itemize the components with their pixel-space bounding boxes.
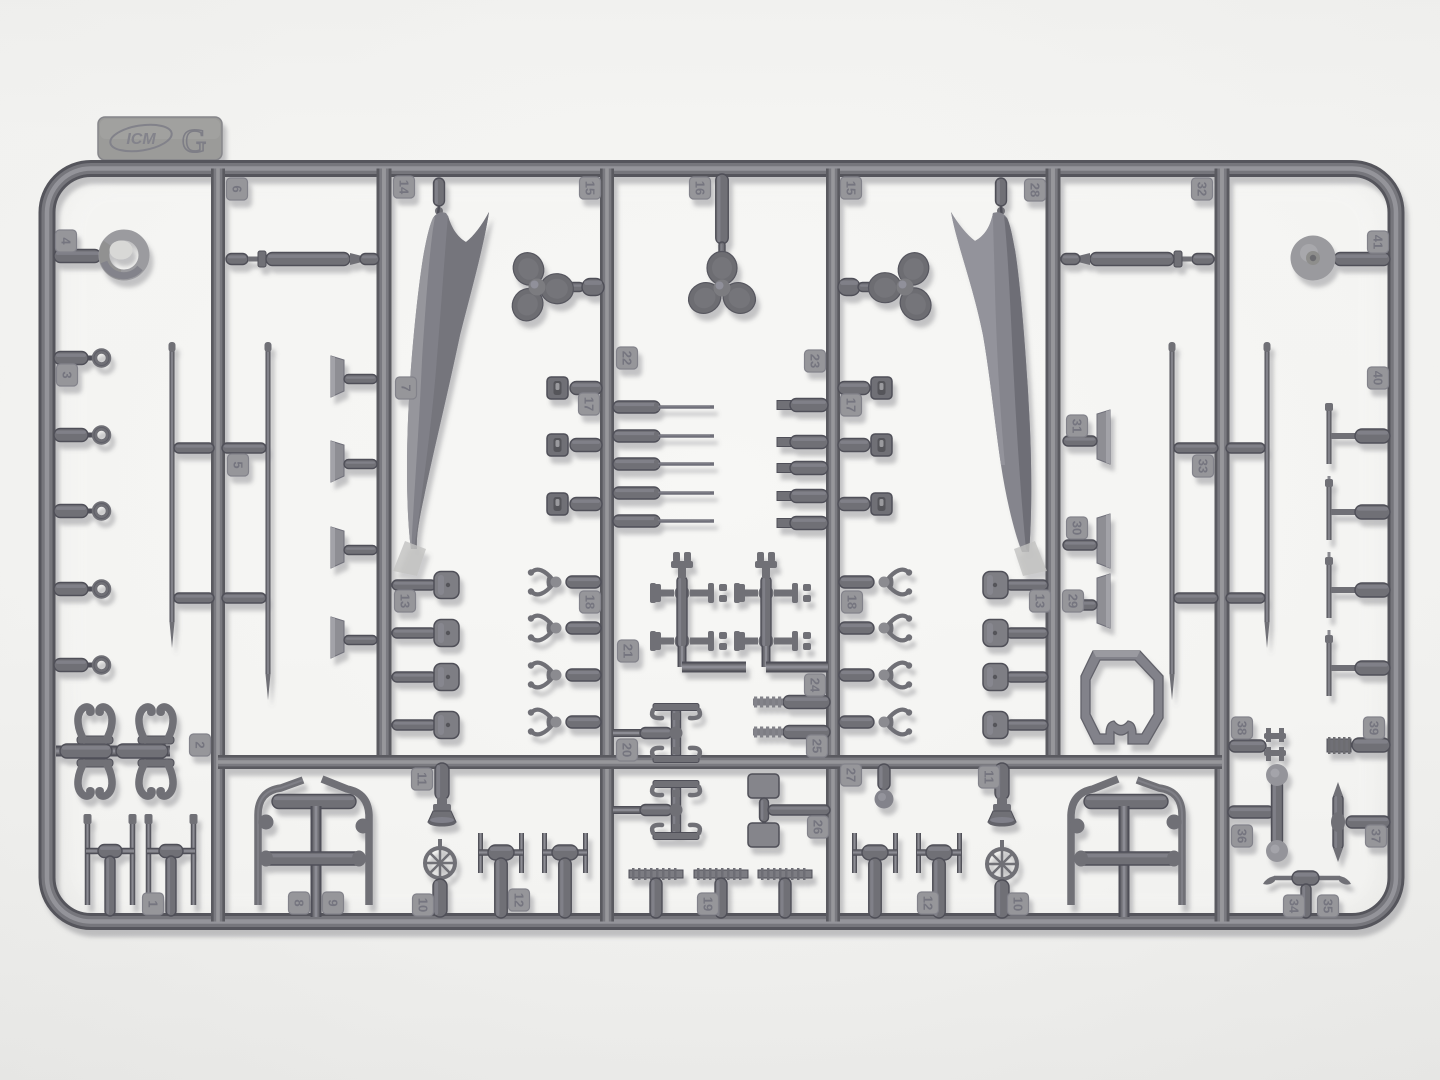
svg-text:ICM: ICM (126, 131, 156, 148)
svg-text:32: 32 (1195, 182, 1210, 196)
svg-text:19: 19 (701, 897, 716, 911)
svg-text:40: 40 (1371, 371, 1386, 385)
svg-text:23: 23 (808, 354, 823, 368)
svg-text:20: 20 (620, 743, 635, 757)
svg-text:6: 6 (230, 185, 245, 192)
svg-text:37: 37 (1369, 829, 1384, 843)
svg-text:13: 13 (398, 594, 413, 608)
svg-text:22: 22 (620, 351, 635, 365)
svg-text:11: 11 (415, 772, 430, 786)
svg-text:18: 18 (583, 595, 598, 609)
svg-text:25: 25 (810, 739, 825, 753)
svg-text:41: 41 (1371, 235, 1386, 249)
svg-text:21: 21 (621, 644, 636, 658)
svg-text:1: 1 (146, 900, 161, 907)
svg-text:15: 15 (583, 181, 598, 195)
svg-text:17: 17 (844, 398, 859, 412)
svg-text:39: 39 (1367, 721, 1382, 735)
svg-text:13: 13 (1033, 594, 1048, 608)
svg-text:3: 3 (60, 371, 75, 378)
svg-text:12: 12 (512, 893, 527, 907)
svg-text:30: 30 (1070, 521, 1085, 535)
svg-text:31: 31 (1070, 419, 1085, 433)
svg-text:10: 10 (1011, 897, 1026, 911)
svg-text:4: 4 (59, 237, 74, 245)
svg-text:8: 8 (292, 899, 307, 906)
svg-text:14: 14 (397, 180, 412, 195)
svg-text:34: 34 (1287, 899, 1302, 914)
svg-text:33: 33 (1196, 459, 1211, 473)
svg-text:5: 5 (231, 461, 246, 468)
svg-text:12: 12 (921, 896, 936, 910)
svg-text:35: 35 (1321, 899, 1336, 913)
svg-text:29: 29 (1066, 594, 1081, 608)
svg-text:2: 2 (193, 741, 208, 748)
svg-text:24: 24 (808, 678, 823, 693)
svg-text:38: 38 (1235, 721, 1250, 735)
svg-text:26: 26 (811, 820, 826, 834)
svg-text:9: 9 (326, 899, 341, 906)
svg-text:17: 17 (582, 397, 597, 411)
svg-text:36: 36 (1235, 829, 1250, 843)
svg-text:28: 28 (1028, 183, 1043, 197)
svg-text:11: 11 (982, 770, 997, 784)
svg-text:10: 10 (416, 898, 431, 912)
svg-text:15: 15 (844, 181, 859, 195)
svg-text:16: 16 (693, 181, 708, 195)
svg-text:18: 18 (845, 595, 860, 609)
svg-text:7: 7 (399, 384, 414, 391)
svg-text:27: 27 (844, 768, 859, 782)
svg-text:G: G (182, 123, 207, 160)
